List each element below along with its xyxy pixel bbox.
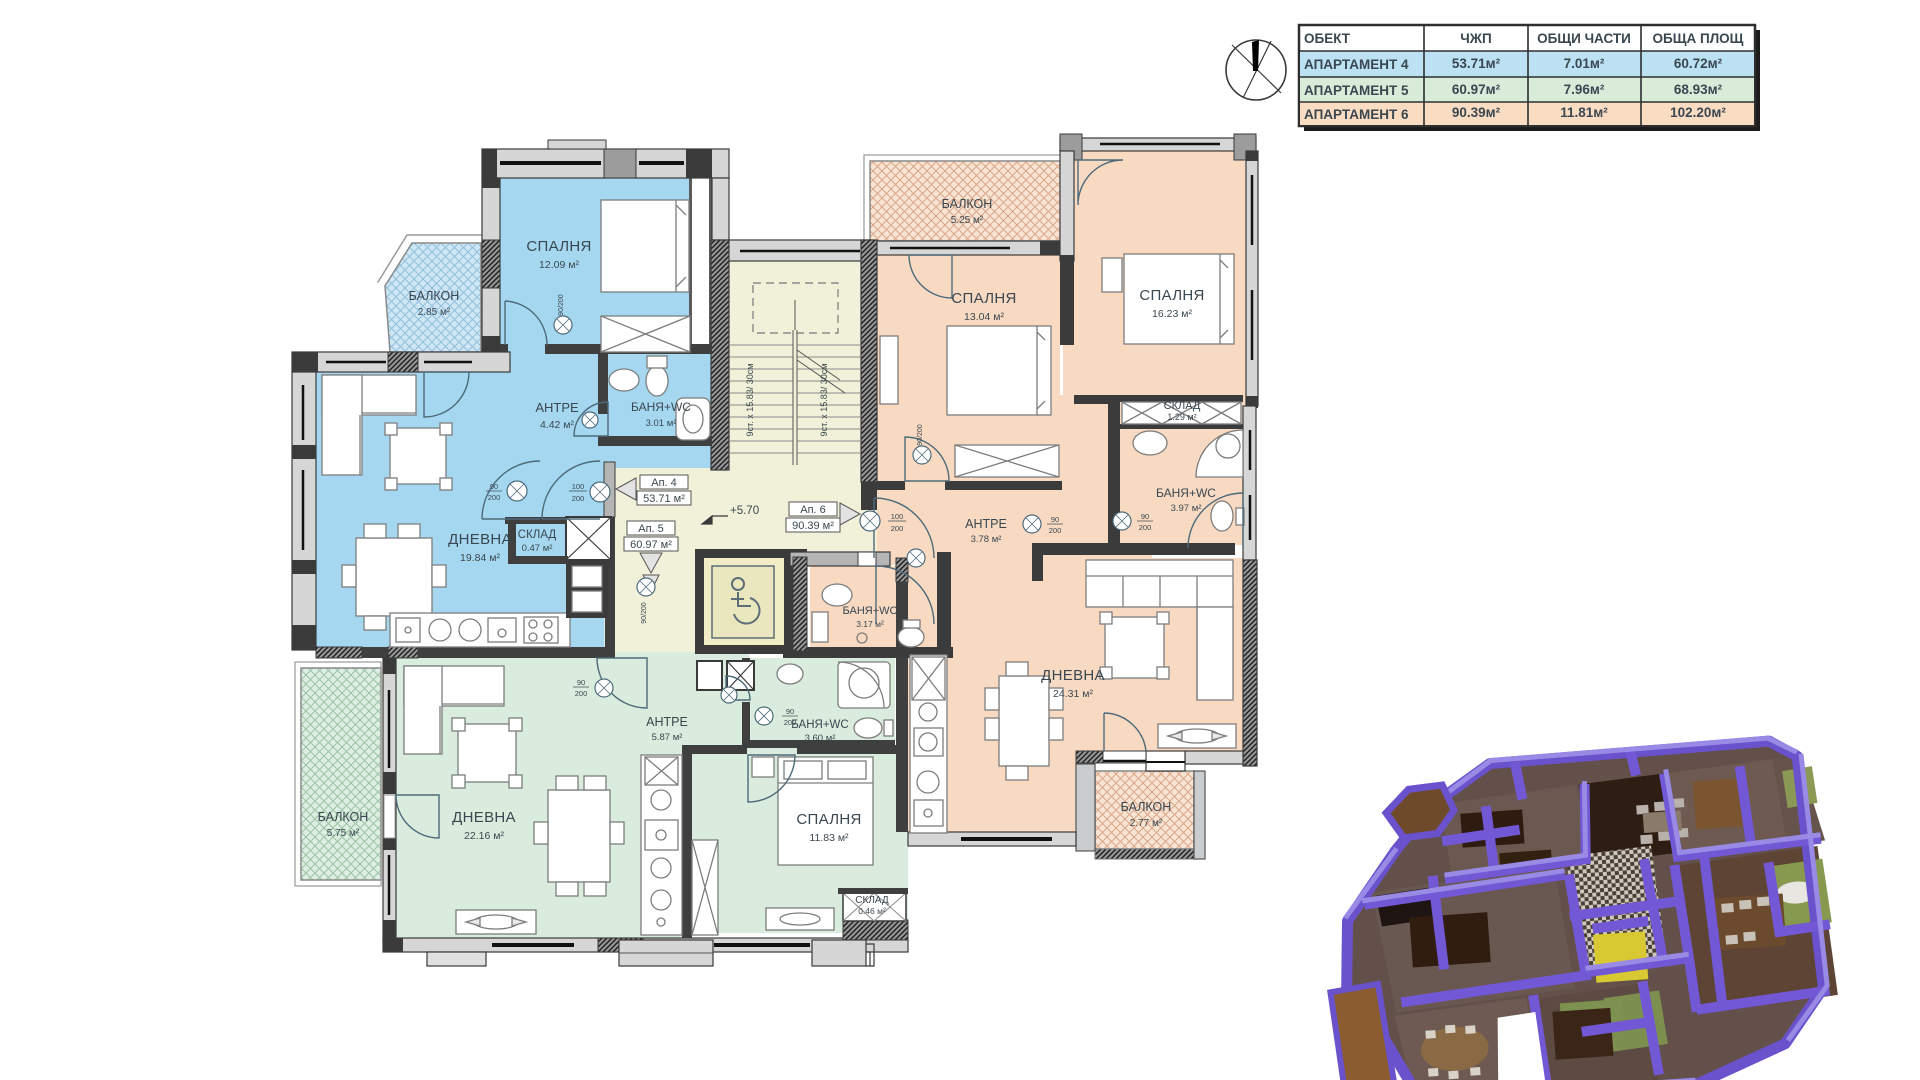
svg-text:5.87 м²: 5.87 м²	[652, 732, 683, 743]
svg-text:90/200: 90/200	[641, 602, 648, 624]
svg-text:90: 90	[1051, 515, 1059, 524]
svg-text:3.17 м²: 3.17 м²	[856, 619, 884, 629]
svg-text:СКЛАД: СКЛАД	[518, 529, 557, 541]
svg-text:3.97 м²: 3.97 м²	[1171, 503, 1202, 514]
svg-text:БАЛКОН: БАЛКОН	[1121, 800, 1172, 814]
svg-text:БАНЯ+WC: БАНЯ+WC	[631, 400, 691, 414]
svg-text:3.78 м²: 3.78 м²	[971, 534, 1002, 545]
svg-text:200: 200	[784, 718, 797, 727]
svg-text:90.39м²: 90.39м²	[1452, 105, 1501, 120]
svg-text:ДНЕВНА: ДНЕВНА	[452, 809, 516, 826]
svg-text:БАЛКОН: БАЛКОН	[318, 810, 369, 824]
svg-text:АНТРЕ: АНТРЕ	[646, 715, 688, 729]
svg-text:11.83 м²: 11.83 м²	[809, 832, 849, 844]
svg-text:БАЛКОН: БАЛКОН	[409, 289, 460, 303]
svg-text:2.77 м²: 2.77 м²	[1130, 818, 1163, 829]
svg-text:БАЛКОН: БАЛКОН	[942, 197, 993, 211]
svg-text:ДНЕВНА: ДНЕВНА	[1041, 667, 1105, 684]
svg-text:АПАРТАМЕНТ 6: АПАРТАМЕНТ 6	[1304, 107, 1409, 122]
svg-text:СПАЛНЯ: СПАЛНЯ	[796, 811, 861, 828]
svg-text:5.25 м²: 5.25 м²	[951, 215, 984, 226]
svg-text:СПАЛНЯ: СПАЛНЯ	[526, 238, 591, 255]
svg-text:200: 200	[575, 689, 588, 698]
svg-text:СПАЛНЯ: СПАЛНЯ	[951, 290, 1016, 307]
svg-text:200: 200	[488, 493, 501, 502]
svg-text:90: 90	[1141, 512, 1149, 521]
svg-text:22.16 м²: 22.16 м²	[464, 830, 504, 842]
svg-text:200: 200	[1049, 526, 1062, 535]
svg-text:1.29 м²: 1.29 м²	[1167, 412, 1196, 422]
svg-text:ОБЩИ ЧАСТИ: ОБЩИ ЧАСТИ	[1537, 31, 1631, 46]
svg-text:60.97 м²: 60.97 м²	[630, 539, 672, 551]
svg-text:200: 200	[891, 524, 904, 533]
svg-text:90: 90	[490, 482, 498, 491]
svg-text:68.93м²: 68.93м²	[1674, 82, 1723, 97]
svg-text:60.72м²: 60.72м²	[1674, 56, 1723, 71]
svg-text:5.75 м²: 5.75 м²	[327, 828, 360, 839]
svg-text:19.84 м²: 19.84 м²	[460, 552, 500, 564]
svg-text:ОБЩА ПЛОЩ: ОБЩА ПЛОЩ	[1653, 31, 1744, 46]
svg-text:СКЛАД: СКЛАД	[1164, 400, 1201, 412]
svg-text:90: 90	[577, 678, 585, 687]
svg-text:53.71м²: 53.71м²	[1452, 56, 1501, 71]
svg-text:9ст. x 15.83/ 30см: 9ст. x 15.83/ 30см	[819, 364, 829, 437]
svg-text:24.31 м²: 24.31 м²	[1053, 688, 1093, 700]
svg-text:100: 100	[572, 482, 585, 491]
svg-text:ДНЕВНА: ДНЕВНА	[448, 531, 512, 548]
svg-text:200: 200	[572, 494, 585, 503]
svg-text:16.23 м²: 16.23 м²	[1152, 308, 1192, 320]
svg-text:102.20м²: 102.20м²	[1670, 105, 1726, 120]
svg-text:АПАРТАМЕНТ 5: АПАРТАМЕНТ 5	[1304, 83, 1409, 98]
svg-text:4.42 м²: 4.42 м²	[540, 419, 575, 431]
svg-text:Ап. 5: Ап. 5	[638, 523, 664, 535]
svg-text:ЧЖП: ЧЖП	[1460, 31, 1491, 46]
svg-text:12.09 м²: 12.09 м²	[539, 259, 579, 271]
svg-text:7.96м²: 7.96м²	[1564, 82, 1605, 97]
svg-text:Ап. 4: Ап. 4	[651, 477, 677, 489]
svg-text:60.97м²: 60.97м²	[1452, 82, 1501, 97]
svg-text:3.60 м²: 3.60 м²	[805, 733, 836, 744]
svg-text:СКЛАД: СКЛАД	[855, 895, 889, 906]
svg-text:3.01 м²: 3.01 м²	[646, 418, 677, 429]
svg-text:90/200: 90/200	[558, 294, 565, 316]
svg-text:СПАЛНЯ: СПАЛНЯ	[1139, 287, 1204, 304]
svg-text:7.01м²: 7.01м²	[1564, 56, 1605, 71]
svg-text:53.71 м²: 53.71 м²	[643, 493, 685, 505]
svg-text:+5.70: +5.70	[730, 505, 759, 517]
svg-text:БАНЯ+WC: БАНЯ+WC	[1156, 486, 1216, 500]
svg-text:0.46 м²: 0.46 м²	[858, 906, 886, 916]
svg-text:БАНЯ+WC: БАНЯ+WC	[843, 605, 898, 617]
svg-text:90/200: 90/200	[917, 424, 924, 446]
svg-text:11.81м²: 11.81м²	[1560, 105, 1608, 120]
svg-text:БАНЯ+WC: БАНЯ+WC	[791, 719, 848, 731]
svg-text:Ап. 6: Ап. 6	[800, 504, 826, 516]
svg-text:АПАРТАМЕНТ 4: АПАРТАМЕНТ 4	[1304, 57, 1409, 72]
svg-text:0.47 м²: 0.47 м²	[522, 543, 553, 554]
svg-text:13.04 м²: 13.04 м²	[964, 311, 1004, 323]
svg-text:90: 90	[786, 707, 794, 716]
svg-text:100: 100	[891, 512, 904, 521]
svg-text:9ст. x 15.83/ 30см: 9ст. x 15.83/ 30см	[745, 364, 755, 437]
svg-text:АНТРЕ: АНТРЕ	[535, 400, 579, 415]
svg-text:200: 200	[1139, 523, 1152, 532]
svg-text:АНТРЕ: АНТРЕ	[965, 517, 1007, 531]
svg-text:ОБЕКТ: ОБЕКТ	[1304, 31, 1351, 46]
svg-text:90.39 м²: 90.39 м²	[792, 520, 834, 532]
svg-text:2.85 м²: 2.85 м²	[418, 307, 451, 318]
